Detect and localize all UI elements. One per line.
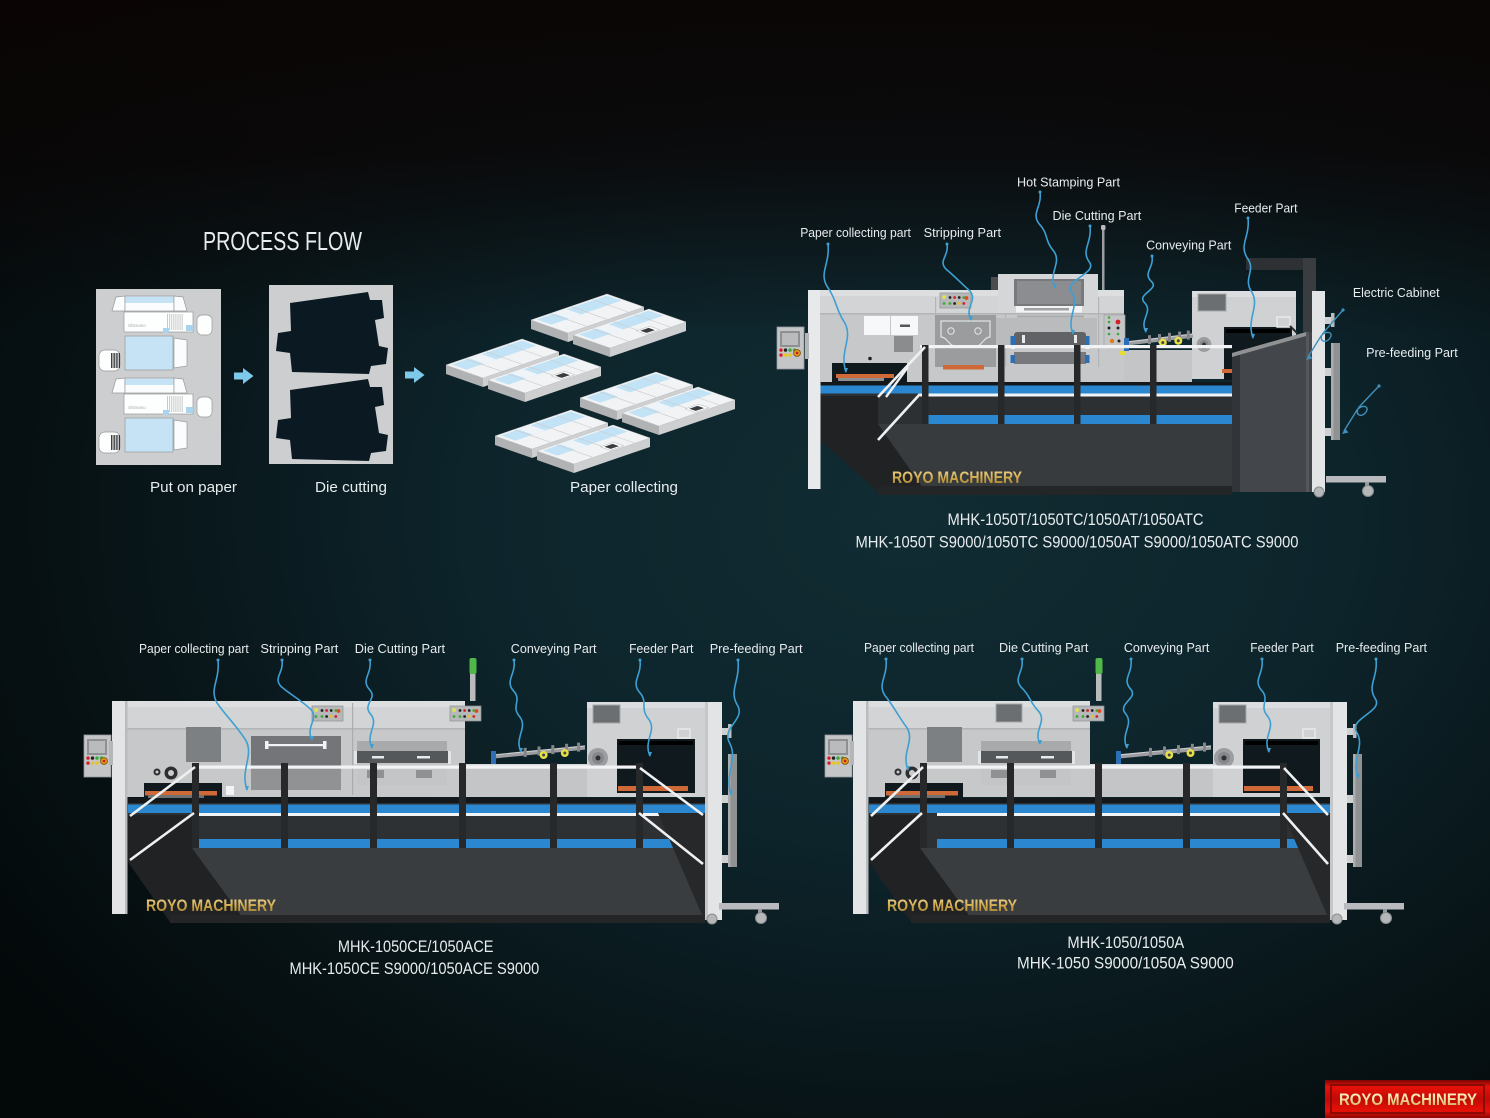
svg-text:Paper collecting part: Paper collecting part xyxy=(139,641,249,656)
svg-text:Die Cutting Part: Die Cutting Part xyxy=(355,641,446,656)
svg-text:Hot Stamping Part: Hot Stamping Part xyxy=(1017,175,1120,190)
svg-text:PROCESS FLOW: PROCESS FLOW xyxy=(203,226,362,256)
svg-text:Shimano: Shimano xyxy=(128,323,146,328)
svg-text:Pre-feeding Part: Pre-feeding Part xyxy=(710,641,803,656)
svg-text:Feeder Part: Feeder Part xyxy=(1234,201,1298,216)
svg-text:MHK-1050T S9000/1050TC S9000/1: MHK-1050T S9000/1050TC S9000/1050AT S900… xyxy=(856,533,1299,552)
svg-text:Pre-feeding Part: Pre-feeding Part xyxy=(1336,640,1428,655)
svg-text:ROYO MACHINERY: ROYO MACHINERY xyxy=(146,897,276,915)
svg-text:Paper collecting: Paper collecting xyxy=(570,479,678,496)
svg-text:MHK-1050CE/1050ACE: MHK-1050CE/1050ACE xyxy=(338,937,494,956)
svg-text:MHK-1050CE S9000/1050ACE S9000: MHK-1050CE S9000/1050ACE S9000 xyxy=(290,959,540,978)
svg-text:ROYO MACHINERY: ROYO MACHINERY xyxy=(1339,1090,1478,1109)
svg-text:Paper collecting part: Paper collecting part xyxy=(800,225,911,240)
svg-text:Die Cutting Part: Die Cutting Part xyxy=(999,640,1089,655)
svg-text:Die Cutting Part: Die Cutting Part xyxy=(1053,208,1142,223)
svg-text:Die cutting: Die cutting xyxy=(315,479,387,496)
svg-text:Put on paper: Put on paper xyxy=(150,479,237,496)
svg-text:MHK-1050T/1050TC/1050AT/1050AT: MHK-1050T/1050TC/1050AT/1050ATC xyxy=(948,510,1204,529)
svg-text:Feeder Part: Feeder Part xyxy=(1250,640,1314,655)
svg-text:Stripping Part: Stripping Part xyxy=(924,225,1002,240)
svg-text:Stripping Part: Stripping Part xyxy=(260,641,338,656)
svg-text:Pre-feeding Part: Pre-feeding Part xyxy=(1366,345,1458,360)
svg-text:Shimano: Shimano xyxy=(128,405,146,410)
svg-text:MHK-1050 S9000/1050A S9000: MHK-1050 S9000/1050A S9000 xyxy=(1017,954,1234,973)
svg-text:Electric Cabinet: Electric Cabinet xyxy=(1353,285,1440,300)
svg-text:Conveying Part: Conveying Part xyxy=(1146,237,1232,252)
svg-text:Conveying Part: Conveying Part xyxy=(511,641,597,656)
svg-text:ROYO MACHINERY: ROYO MACHINERY xyxy=(892,469,1022,487)
svg-text:Paper collecting part: Paper collecting part xyxy=(864,640,974,655)
svg-text:Conveying Part: Conveying Part xyxy=(1124,640,1210,655)
svg-text:ROYO MACHINERY: ROYO MACHINERY xyxy=(887,897,1017,915)
svg-text:Feeder Part: Feeder Part xyxy=(629,641,694,656)
svg-text:MHK-1050/1050A: MHK-1050/1050A xyxy=(1067,933,1184,952)
